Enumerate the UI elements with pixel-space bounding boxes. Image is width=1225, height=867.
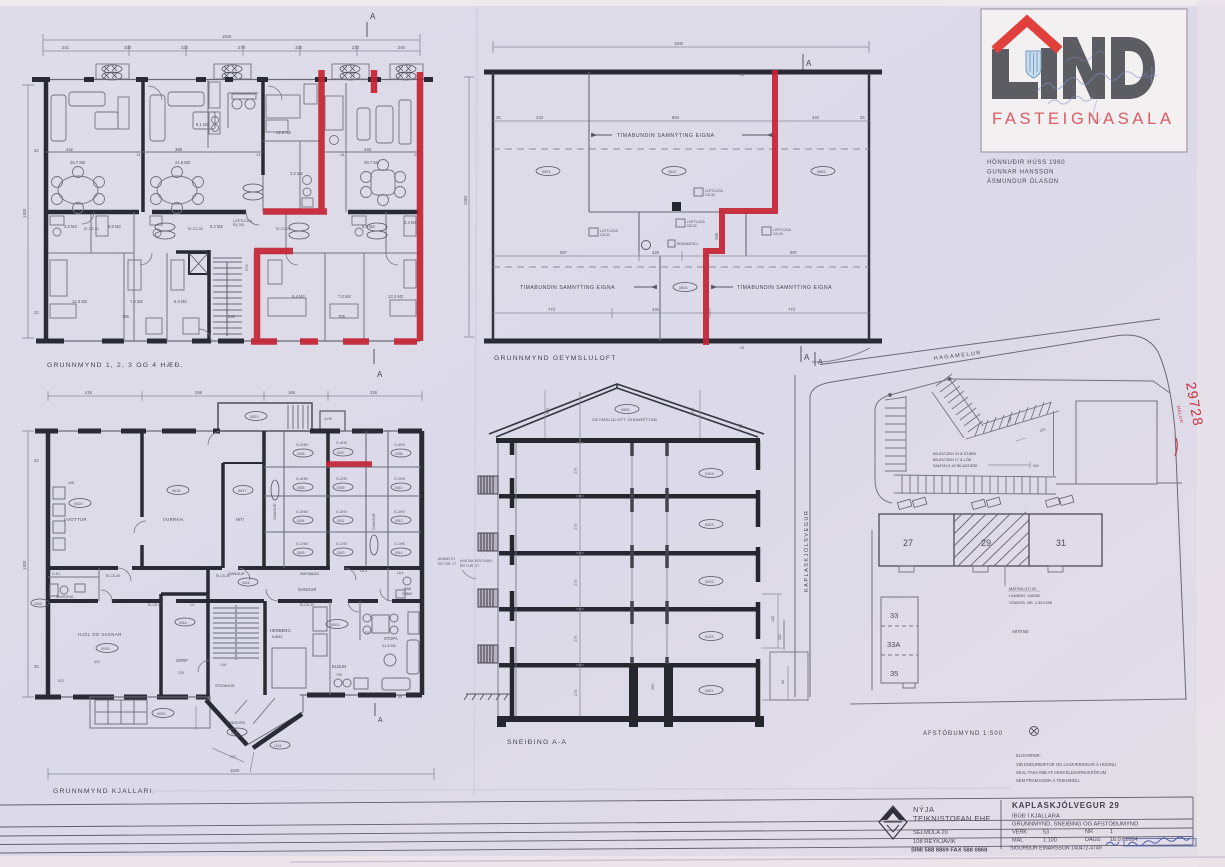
svg-text:GANGUR: GANGUR bbox=[298, 587, 316, 592]
svg-text:279: 279 bbox=[238, 45, 246, 50]
svg-text:SAMTALS 40 BÍLASTÆÐI: SAMTALS 40 BÍLASTÆÐI bbox=[933, 464, 977, 468]
svg-text:186: 186 bbox=[288, 390, 296, 395]
svg-text:423: 423 bbox=[364, 631, 370, 635]
svg-text:755: 755 bbox=[338, 314, 346, 319]
svg-text:773: 773 bbox=[788, 307, 796, 312]
svg-text:522: 522 bbox=[58, 679, 64, 683]
svg-text:1: 1 bbox=[1110, 829, 1113, 835]
svg-text:ANDDYRI: ANDDYRI bbox=[228, 721, 245, 725]
svg-text:NR: NR bbox=[1085, 829, 1093, 835]
svg-text:ANNAÐ KJ: ANNAÐ KJ bbox=[438, 557, 455, 561]
svg-text:14: 14 bbox=[190, 603, 194, 607]
svg-text:0012: 0012 bbox=[395, 519, 403, 523]
svg-text:G-3HM: G-3HM bbox=[296, 510, 308, 514]
svg-text:0503: 0503 bbox=[621, 408, 629, 412]
svg-text:BÍLASTÆÐI 23 Á STÆÐI: BÍLASTÆÐI 23 Á STÆÐI bbox=[933, 452, 976, 456]
svg-text:9.9 M2: 9.9 M2 bbox=[362, 224, 375, 229]
svg-text:0017: 0017 bbox=[238, 489, 246, 493]
svg-text:ÞVOTTUR: ÞVOTTUR bbox=[64, 517, 87, 522]
svg-text:HERBERG: HERBERG bbox=[270, 628, 291, 633]
svg-text:ER Í NR. 27: ER Í NR. 27 bbox=[438, 562, 456, 566]
svg-text:254: 254 bbox=[778, 634, 782, 640]
svg-text:0018: 0018 bbox=[172, 489, 180, 493]
svg-text:275: 275 bbox=[574, 468, 578, 474]
svg-text:1300: 1300 bbox=[22, 208, 27, 218]
svg-text:423: 423 bbox=[94, 660, 100, 664]
svg-text:ÍBÚÐ Í KJALLARA: ÍBÚÐ Í KJALLARA bbox=[1012, 813, 1060, 820]
svg-text:7.0 M2: 7.0 M2 bbox=[338, 294, 351, 299]
svg-text:0503: 0503 bbox=[817, 170, 825, 174]
svg-text:0013: 0013 bbox=[337, 551, 345, 555]
svg-text:229: 229 bbox=[178, 671, 184, 675]
svg-text:EI-CS-30: EI-CS-30 bbox=[276, 227, 291, 231]
svg-text:241: 241 bbox=[62, 45, 70, 50]
svg-text:CB-30: CB-30 bbox=[705, 193, 715, 197]
svg-text:EI-CS-30: EI-CS-30 bbox=[216, 574, 230, 578]
svg-text:3.4 M2: 3.4 M2 bbox=[404, 220, 417, 225]
svg-text:CB-30: CB-30 bbox=[600, 233, 610, 237]
svg-text:LANDNR. 106082: LANDNR. 106082 bbox=[1009, 593, 1040, 598]
svg-text:275: 275 bbox=[574, 580, 578, 586]
svg-text:LA 4: LA 4 bbox=[360, 569, 367, 573]
svg-text:SNEIÐING A-A: SNEIÐING A-A bbox=[507, 739, 567, 746]
svg-text:14: 14 bbox=[340, 152, 345, 157]
svg-text:HJÓL OG VAGNAR: HJÓL OG VAGNAR bbox=[78, 632, 122, 637]
svg-text:EI-CS 30: EI-CS 30 bbox=[84, 227, 99, 231]
svg-text:8.2 M2: 8.2 M2 bbox=[210, 224, 223, 229]
svg-text:25: 25 bbox=[740, 73, 744, 77]
svg-text:33: 33 bbox=[890, 611, 898, 620]
svg-text:26.7 M2: 26.7 M2 bbox=[70, 160, 86, 165]
svg-text:SORP: SORP bbox=[176, 658, 188, 663]
svg-text:ÞURRKH.: ÞURRKH. bbox=[163, 517, 185, 522]
svg-text:240: 240 bbox=[228, 314, 236, 319]
svg-text:0104: 0104 bbox=[231, 731, 239, 735]
svg-text:66: 66 bbox=[739, 424, 743, 428]
svg-text:29: 29 bbox=[981, 538, 991, 548]
svg-text:31: 31 bbox=[1056, 538, 1066, 548]
svg-text:434: 434 bbox=[652, 307, 660, 312]
svg-text:0010: 0010 bbox=[395, 486, 403, 490]
svg-text:SEM FRAM KOMA Á TEIKNINGU.: SEM FRAM KOMA Á TEIKNINGU. bbox=[1016, 778, 1080, 783]
svg-text:ÞAKTAK KÖLTURN: ÞAKTAK KÖLTURN bbox=[460, 559, 492, 563]
svg-text:1300: 1300 bbox=[22, 560, 27, 570]
svg-text:GANGUR: GANGUR bbox=[228, 572, 245, 576]
svg-text:G-3HV: G-3HV bbox=[336, 510, 348, 514]
svg-text:EI-CS-30: EI-CS-30 bbox=[188, 227, 203, 231]
svg-text:KAPLASKJÓLSVEGUR: KAPLASKJÓLSVEGUR bbox=[803, 510, 810, 592]
svg-text:295: 295 bbox=[714, 232, 719, 240]
svg-text:53: 53 bbox=[1043, 830, 1049, 836]
svg-text:ER Í NR. 27: ER Í NR. 27 bbox=[460, 564, 479, 568]
svg-text:0003: 0003 bbox=[297, 551, 305, 555]
svg-text:EI(-30): EI(-30) bbox=[233, 223, 244, 227]
svg-text:4-HV: 4-HV bbox=[324, 417, 333, 421]
svg-text:446: 446 bbox=[364, 147, 372, 152]
svg-text:STOFA: STOFA bbox=[384, 636, 398, 641]
svg-text:21.8 M2: 21.8 M2 bbox=[175, 160, 191, 165]
svg-text:0009: 0009 bbox=[34, 602, 42, 606]
svg-text:1840: 1840 bbox=[230, 768, 240, 773]
svg-text:A: A bbox=[818, 359, 823, 366]
svg-text:33A: 33A bbox=[887, 640, 900, 649]
svg-text:0203: 0203 bbox=[705, 580, 713, 584]
svg-text:446: 446 bbox=[68, 481, 74, 485]
svg-text:EI-CS-30: EI-CS-30 bbox=[106, 574, 120, 578]
svg-text:TÍMABUNDIN SAMNÝTING EIGNA: TÍMABUNDIN SAMNÝTING EIGNA bbox=[617, 132, 715, 139]
svg-text:425: 425 bbox=[652, 250, 660, 255]
svg-text:0006: 0006 bbox=[297, 452, 305, 456]
svg-text:LA 4: LA 4 bbox=[397, 571, 404, 575]
svg-text:CB-30: CB-30 bbox=[773, 232, 783, 236]
svg-text:0001: 0001 bbox=[331, 623, 339, 627]
svg-text:A879 M2: A879 M2 bbox=[1012, 629, 1029, 634]
svg-text:AFSTÖÐUMYND 1:500: AFSTÖÐUMYND 1:500 bbox=[923, 730, 1003, 737]
svg-text:A: A bbox=[804, 353, 810, 362]
svg-text:8.1 M2: 8.1 M2 bbox=[196, 122, 209, 127]
svg-text:A: A bbox=[806, 59, 812, 68]
svg-text:BAÐ: BAÐ bbox=[404, 587, 412, 591]
svg-text:108 REYKJAVÍK: 108 REYKJAVÍK bbox=[913, 838, 956, 845]
svg-text:22: 22 bbox=[34, 458, 39, 463]
svg-text:ELDVARNIR:: ELDVARNIR: bbox=[1016, 753, 1041, 758]
svg-text:6.4 M2: 6.4 M2 bbox=[174, 299, 187, 304]
svg-text:755: 755 bbox=[122, 314, 130, 319]
svg-text:G-4HK: G-4HK bbox=[336, 441, 348, 445]
svg-text:0007: 0007 bbox=[337, 451, 345, 455]
svg-text:773: 773 bbox=[548, 307, 556, 312]
svg-text:13.3 M2: 13.3 M2 bbox=[388, 294, 404, 299]
svg-text:GRUNNMYND KJALLARI.: GRUNNMYND KJALLARI. bbox=[53, 788, 156, 795]
svg-text:575: 575 bbox=[546, 408, 550, 414]
svg-text:0008: 0008 bbox=[395, 452, 403, 456]
svg-text:398: 398 bbox=[175, 147, 183, 152]
svg-text:14: 14 bbox=[136, 152, 141, 157]
svg-text:830: 830 bbox=[1033, 464, 1039, 468]
svg-text:25: 25 bbox=[740, 346, 744, 350]
svg-text:ÁSMUNDUR ÓLASON: ÁSMUNDUR ÓLASON bbox=[987, 178, 1059, 185]
svg-text:27: 27 bbox=[903, 538, 913, 548]
svg-text:GUNNAR HANSSON: GUNNAR HANSSON bbox=[987, 170, 1054, 176]
svg-text:587: 587 bbox=[560, 250, 568, 255]
svg-text:22: 22 bbox=[34, 310, 39, 315]
svg-text:1840: 1840 bbox=[222, 34, 232, 39]
svg-text:275: 275 bbox=[574, 636, 578, 642]
svg-text:EI-CS-30: EI-CS-30 bbox=[300, 603, 314, 607]
svg-text:14: 14 bbox=[256, 152, 261, 157]
svg-text:0022: 0022 bbox=[157, 712, 165, 716]
svg-text:0023: 0023 bbox=[250, 415, 258, 419]
svg-text:12.3 M2: 12.3 M2 bbox=[72, 299, 88, 304]
svg-text:0014: 0014 bbox=[179, 621, 187, 625]
svg-text:190: 190 bbox=[691, 408, 695, 414]
svg-text:9.8M2: 9.8M2 bbox=[272, 635, 283, 639]
svg-text:587: 587 bbox=[790, 250, 798, 255]
svg-text:80: 80 bbox=[398, 695, 402, 699]
svg-text:CB-30: CB-30 bbox=[687, 224, 697, 228]
svg-text:EI-CS-30: EI-CS-30 bbox=[148, 603, 162, 607]
svg-text:220: 220 bbox=[352, 45, 360, 50]
svg-text:0015: 0015 bbox=[101, 647, 109, 651]
svg-text:1:100: 1:100 bbox=[1043, 838, 1057, 844]
svg-text:TEIKNISTOFAN EHF: TEIKNISTOFAN EHF bbox=[913, 814, 991, 823]
svg-text:MATSHLUTI 02: MATSHLUTI 02 bbox=[1009, 586, 1036, 591]
svg-text:G-4HV: G-4HV bbox=[394, 443, 406, 447]
svg-text:G-KJ: G-KJ bbox=[52, 572, 60, 576]
svg-text:328: 328 bbox=[370, 390, 378, 395]
svg-text:G-2HV: G-2HV bbox=[336, 477, 348, 481]
svg-text:0103: 0103 bbox=[705, 635, 713, 639]
svg-text:275: 275 bbox=[574, 690, 578, 696]
svg-text:250: 250 bbox=[651, 684, 655, 690]
svg-text:GEYMSLULOFT ÓINNRÉTTAÐ: GEYMSLULOFT ÓINNRÉTTAÐ bbox=[592, 417, 657, 422]
svg-text:0501: 0501 bbox=[542, 170, 550, 174]
svg-text:G-1HM: G-1HM bbox=[296, 542, 308, 546]
svg-text:1840: 1840 bbox=[674, 41, 684, 46]
svg-text:0004: 0004 bbox=[297, 519, 305, 523]
svg-text:HITI: HITI bbox=[236, 517, 244, 522]
svg-text:GRUNNMYND GEYMSLULOFT: GRUNNMYND GEYMSLULOFT bbox=[494, 355, 617, 362]
svg-text:268: 268 bbox=[195, 390, 203, 395]
svg-text:G-3HV: G-3HV bbox=[394, 510, 406, 514]
svg-text:HÖNNUÐIR HÚSS 1960: HÖNNUÐIR HÚSS 1960 bbox=[987, 159, 1065, 166]
svg-text:0001: 0001 bbox=[705, 689, 713, 693]
svg-text:TÍMABUNDIN SAMNÝTING EIGNA: TÍMABUNDIN SAMNÝTING EIGNA bbox=[520, 284, 615, 291]
svg-text:NÝJA: NÝJA bbox=[913, 805, 935, 814]
svg-text:0011: 0011 bbox=[337, 519, 344, 523]
svg-text:202: 202 bbox=[124, 45, 132, 50]
svg-text:GRUNNMYND 1, 2, 3 OG 4 HÆÐ.: GRUNNMYND 1, 2, 3 OG 4 HÆÐ. bbox=[47, 362, 184, 369]
svg-text:A: A bbox=[378, 717, 383, 724]
svg-text:575: 575 bbox=[244, 264, 249, 271]
svg-text:28.7 M2: 28.7 M2 bbox=[364, 160, 380, 165]
svg-text:G-1HV: G-1HV bbox=[336, 542, 348, 546]
svg-text:0502: 0502 bbox=[668, 170, 676, 174]
svg-text:GRUNNMYND, SNEIÐING OG AFSTÖÐU: GRUNNMYND, SNEIÐING OG AFSTÖÐUMYND bbox=[1012, 821, 1138, 828]
svg-text:KAPLASKJÓLVEGUR 29: KAPLASKJÓLVEGUR 29 bbox=[1012, 801, 1120, 810]
svg-text:66: 66 bbox=[781, 680, 785, 684]
svg-text:0019: 0019 bbox=[74, 502, 82, 506]
svg-text:0005: 0005 bbox=[297, 486, 305, 490]
svg-text:3.6 M2: 3.6 M2 bbox=[64, 224, 77, 229]
svg-text:TÍMABUNDIN SAMNÝTING EIGNA: TÍMABUNDIN SAMNÝTING EIGNA bbox=[737, 284, 832, 291]
svg-text:SKAL TAKA MIÐ AF ÞEIM ELDVARNA: SKAL TAKA MIÐ AF ÞEIM ELDVARNAKRÖFUM bbox=[1016, 770, 1107, 775]
svg-text:894: 894 bbox=[672, 115, 680, 120]
svg-text:VIÐ ENDURBÆTUR OG LAGFÆRINGAR: VIÐ ENDURBÆTUR OG LAGFÆRINGAR Á HÚSINU bbox=[1016, 762, 1116, 767]
svg-text:GANGUR: GANGUR bbox=[273, 503, 277, 520]
svg-text:25: 25 bbox=[860, 115, 865, 120]
svg-text:SELMÚLA 20: SELMÚLA 20 bbox=[913, 829, 948, 836]
svg-text:G-2HK: G-2HK bbox=[394, 477, 406, 481]
svg-text:322: 322 bbox=[181, 45, 189, 50]
svg-text:G-4HM: G-4HM bbox=[296, 477, 308, 481]
svg-text:325: 325 bbox=[295, 45, 303, 50]
svg-text:25: 25 bbox=[496, 115, 501, 120]
svg-text:SIGURÐUR EINARSSON 140472-4749: SIGURÐUR EINARSSON 140472-4749 bbox=[1010, 846, 1102, 852]
svg-text:0016: 0016 bbox=[242, 581, 250, 585]
svg-text:G-2HM: G-2HM bbox=[296, 443, 308, 447]
svg-text:240: 240 bbox=[398, 45, 406, 50]
svg-text:755: 755 bbox=[336, 673, 342, 677]
svg-text:GANGUR: GANGUR bbox=[372, 513, 376, 530]
svg-text:BÍLASTÆÐI 17 Á LÓÐ: BÍLASTÆÐI 17 Á LÓÐ bbox=[933, 457, 972, 462]
svg-text:25: 25 bbox=[34, 664, 39, 669]
svg-text:35: 35 bbox=[890, 669, 898, 678]
svg-text:DAGS: DAGS bbox=[1085, 837, 1101, 843]
svg-text:3.2 M2: 3.2 M2 bbox=[290, 171, 303, 176]
svg-text:A: A bbox=[370, 12, 376, 21]
svg-text:442: 442 bbox=[66, 147, 74, 152]
svg-text:2.8M2: 2.8M2 bbox=[402, 592, 412, 596]
svg-text:ELDUN: ELDUN bbox=[332, 664, 346, 669]
svg-text:0303: 0303 bbox=[705, 523, 713, 527]
svg-text:1124: 1124 bbox=[274, 744, 281, 748]
svg-text:SNYRTING: SNYRTING bbox=[56, 595, 74, 599]
svg-text:VERK: VERK bbox=[1012, 830, 1027, 836]
svg-text:12.6 M2: 12.6 M2 bbox=[276, 130, 292, 135]
svg-text:0009: 0009 bbox=[337, 486, 345, 490]
svg-text:BRUNASTIGI: BRUNASTIGI bbox=[677, 242, 698, 246]
svg-text:7.0 M2: 7.0 M2 bbox=[130, 299, 143, 304]
svg-text:STAÐGR. NR. 1.323.005: STAÐGR. NR. 1.323.005 bbox=[1009, 600, 1052, 605]
svg-text:275: 275 bbox=[574, 524, 578, 530]
svg-text:RAFMAGN: RAFMAGN bbox=[300, 572, 319, 576]
svg-text:148: 148 bbox=[220, 663, 226, 667]
svg-text:G-1HK: G-1HK bbox=[394, 542, 406, 546]
svg-text:SÍMI 588 8869 FAX 588 0868: SÍMI 588 8869 FAX 588 0868 bbox=[911, 846, 988, 854]
svg-text:22: 22 bbox=[34, 148, 39, 153]
svg-text:418: 418 bbox=[85, 390, 93, 395]
svg-text:0403: 0403 bbox=[705, 472, 713, 476]
svg-text:8.4 M2: 8.4 M2 bbox=[292, 294, 305, 299]
svg-text:9.8 M2: 9.8 M2 bbox=[108, 224, 121, 229]
svg-text:0504: 0504 bbox=[679, 286, 687, 290]
svg-text:0014: 0014 bbox=[395, 551, 403, 555]
svg-text:135: 135 bbox=[771, 616, 775, 622]
svg-text:MÁL: MÁL bbox=[1012, 837, 1023, 844]
svg-text:A: A bbox=[377, 370, 383, 379]
svg-text:21.3 M2: 21.3 M2 bbox=[382, 644, 396, 648]
svg-text:STIGAHÚS: STIGAHÚS bbox=[215, 683, 235, 688]
svg-text:433: 433 bbox=[812, 115, 820, 120]
svg-text:433: 433 bbox=[536, 115, 544, 120]
svg-text:1360: 1360 bbox=[463, 195, 468, 205]
